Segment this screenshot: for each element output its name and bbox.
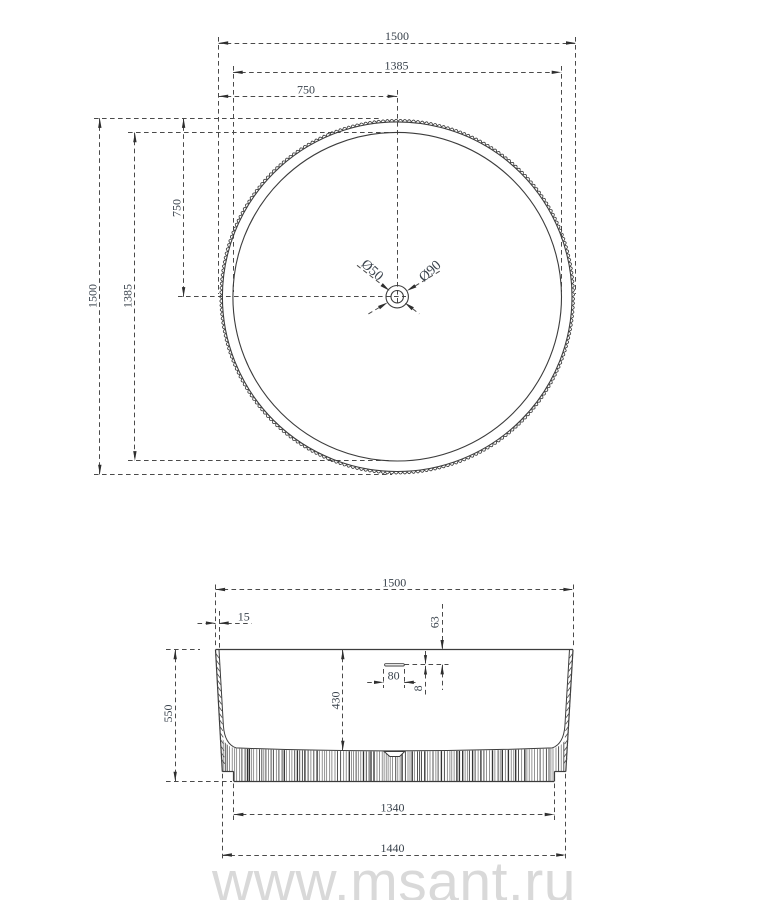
svg-text:1340: 1340: [381, 801, 405, 815]
svg-text:750: 750: [169, 199, 183, 217]
svg-text:750: 750: [297, 83, 315, 97]
svg-text:80: 80: [388, 669, 400, 683]
svg-text:1440: 1440: [381, 841, 405, 855]
svg-text:1500: 1500: [86, 284, 100, 308]
svg-text:1500: 1500: [382, 576, 406, 590]
svg-text:15: 15: [238, 609, 250, 623]
svg-text:8: 8: [411, 685, 425, 691]
svg-text:63: 63: [428, 616, 442, 628]
svg-text:1385: 1385: [385, 59, 409, 73]
svg-text:430: 430: [329, 692, 343, 710]
svg-text:1500: 1500: [385, 29, 409, 43]
svg-text:1385: 1385: [121, 284, 135, 308]
svg-text:550: 550: [161, 705, 175, 723]
svg-text:www.msant.ru: www.msant.ru: [211, 850, 576, 900]
